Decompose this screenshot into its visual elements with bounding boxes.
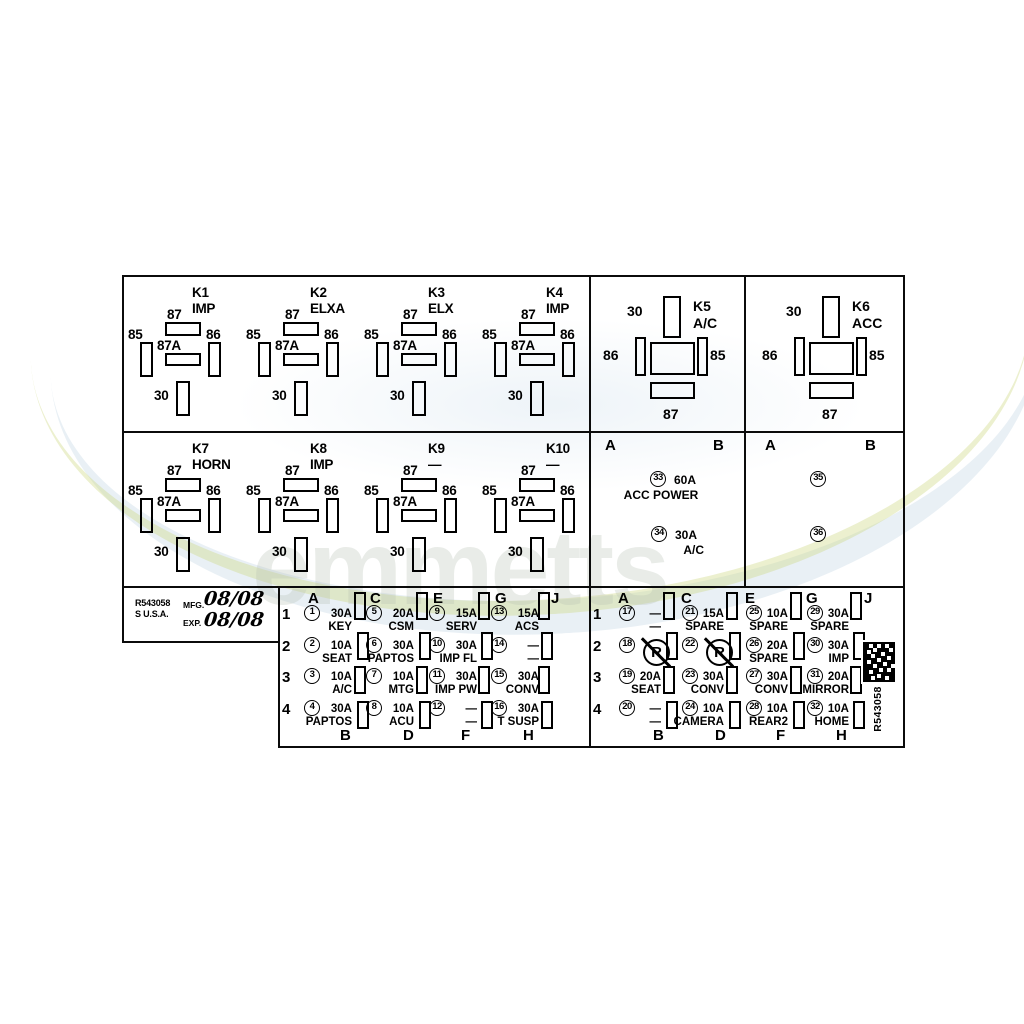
fuse-amp: 10A — [767, 703, 788, 715]
relay-cell-k7: K7 HORN 87 85 86 87A 30 — [124, 435, 242, 585]
pin-label-85: 85 — [364, 483, 378, 498]
fuse-number: 18 — [619, 637, 635, 653]
fuse-amp: 10A — [828, 703, 849, 715]
pin-slot-30 — [412, 381, 426, 416]
fuse-cell-7: 710AMTG — [366, 668, 414, 698]
fuse-slot — [538, 592, 550, 620]
fuse-name: PAPTOS — [306, 716, 352, 728]
fuse-number: 8 — [366, 700, 382, 716]
pin-slot-86 — [794, 337, 805, 376]
relay-id: K10 — [546, 441, 570, 456]
fuse-number: 9 — [429, 605, 445, 621]
fuse-number: 36 — [810, 526, 826, 542]
fuse-name: PAPTOS — [368, 653, 414, 665]
pin-slot-87a — [165, 353, 201, 366]
fuse-cell-9: 915ASERV — [429, 605, 477, 635]
fuse-cell-10: 1030AIMP FL — [429, 637, 477, 667]
fuse-cell-8: 810AACU — [366, 700, 414, 730]
relay-cell-k2: K2 ELXA 87 85 86 87A 30 — [242, 279, 360, 429]
fuse-amp: 30A — [828, 608, 849, 620]
fuse-number: 23 — [682, 668, 698, 684]
fuse-name: MIRROR — [802, 684, 849, 696]
fuse-name: SPARE — [749, 621, 788, 633]
fuse-number: 32 — [807, 700, 823, 716]
pin-label-87: 87 — [285, 463, 299, 478]
fuse-amp: 30A — [518, 703, 539, 715]
fuse-slot — [729, 701, 741, 729]
fuse-number: 14 — [491, 637, 507, 653]
column-letter-a: A — [605, 437, 616, 454]
pin-label-85: 85 — [364, 327, 378, 342]
pin-label-87: 87 — [285, 307, 299, 322]
relay-cell-k4: K4 IMP 87 85 86 87A 30 — [478, 279, 596, 429]
pin-slot-87 — [519, 322, 555, 336]
fuse-slot — [541, 701, 553, 729]
relay-cell-k3: K3 ELX 87 85 86 87A 30 — [360, 279, 478, 429]
pin-label-87a: 87A — [511, 494, 535, 509]
pin-slot-85 — [856, 337, 867, 376]
fuse-cell-2: 210ASEAT — [304, 637, 352, 667]
exp-label: EXP. — [183, 618, 201, 628]
grid-row-number: 1 — [282, 606, 290, 623]
fuse-slot — [354, 592, 366, 620]
fuse-number: 15 — [491, 668, 507, 684]
exp-date-stamp: 08/08 — [203, 610, 265, 631]
fuse-name: SEAT — [631, 684, 661, 696]
relay-id: K3 — [428, 285, 445, 300]
relay-id: K5 — [693, 298, 711, 314]
pin-label-30: 30 — [272, 388, 286, 403]
pin-slot-30 — [822, 296, 840, 338]
no-relay-letter: R — [651, 644, 662, 661]
pin-label-85: 85 — [482, 327, 496, 342]
fuse-number: 1 — [304, 605, 320, 621]
fuse-cell-25: 2510ASPARE — [746, 605, 788, 635]
fuse-cell-30: 3030AIMP — [807, 637, 849, 667]
fuse-cell-4: 430APAPTOS — [304, 700, 352, 730]
fuse-cell-28: 2810AREAR2 — [746, 700, 788, 730]
relay-cell-k1: K1 IMP 87 85 86 87A 30 — [124, 279, 242, 429]
fuse-number: 10 — [429, 637, 445, 653]
pin-slot-87 — [401, 322, 437, 336]
pin-slot-30 — [294, 381, 308, 416]
pin-slot-87 — [283, 322, 319, 336]
relay-box-k5: 30 K5 A/C 86 85 87 — [589, 275, 746, 433]
relay-name: ACC — [852, 315, 882, 331]
pin-slot-87a — [165, 509, 201, 522]
fuse-name: CONV — [506, 684, 539, 696]
fuse-slot — [663, 666, 675, 694]
fuse-slot — [541, 632, 553, 660]
fuse-number: 5 — [366, 605, 382, 621]
pin-slot-87a — [283, 509, 319, 522]
fuse-number: 6 — [366, 637, 382, 653]
fuse-amp: 20A — [767, 640, 788, 652]
fuse-slot — [790, 666, 802, 694]
pin-label-87a: 87A — [157, 338, 181, 353]
fuse-amp: 30A — [393, 640, 414, 652]
fuse-slot — [416, 592, 428, 620]
relay-body-slot — [650, 342, 695, 375]
no-relay-symbol: R — [643, 639, 670, 666]
column-letter-b: B — [713, 437, 724, 454]
pin-slot-87 — [165, 478, 201, 492]
relay-body-slot — [809, 342, 854, 375]
pin-label-87a: 87A — [275, 338, 299, 353]
fuse-slot — [416, 666, 428, 694]
fuse-name: SERV — [446, 621, 477, 633]
pin-slot-87 — [809, 382, 854, 399]
pin-label-85: 85 — [710, 347, 726, 363]
fuse-name: — — [466, 716, 478, 728]
pin-label-86: 86 — [560, 483, 574, 498]
fuse-slot — [793, 701, 805, 729]
pin-slot-85 — [376, 342, 389, 377]
fuse-number: 2 — [304, 637, 320, 653]
fuse-slot — [793, 632, 805, 660]
pin-slot-86 — [208, 342, 221, 377]
fuse-name: IMP PW — [435, 684, 477, 696]
pin-slot-87 — [519, 478, 555, 492]
pin-label-30: 30 — [786, 303, 802, 319]
fuse-cell-11: 1130AIMP PW — [429, 668, 477, 698]
pin-label-87: 87 — [521, 463, 535, 478]
pin-slot-87 — [283, 478, 319, 492]
fuse-number: 24 — [682, 700, 698, 716]
pin-label-85: 85 — [246, 483, 260, 498]
relay-name: HORN — [192, 457, 231, 472]
grid-row-number: 3 — [282, 669, 290, 686]
fuse-name: MTG — [388, 684, 414, 696]
pin-label-86: 86 — [324, 483, 338, 498]
fuse-cell-20: 20—— — [619, 700, 661, 730]
fuse-name: SPARE — [685, 621, 724, 633]
relay-id: K4 — [546, 285, 563, 300]
pin-label-30: 30 — [154, 544, 168, 559]
pin-label-87a: 87A — [275, 494, 299, 509]
fuse-name: ACC POWER — [591, 488, 731, 502]
fuse-number: 31 — [807, 668, 823, 684]
pin-slot-87a — [519, 353, 555, 366]
pin-slot-86 — [444, 342, 457, 377]
fuse-name: IMP FL — [440, 653, 477, 665]
fuse-name: CONV — [691, 684, 724, 696]
pin-slot-30 — [530, 537, 544, 572]
fuse-amp: 30A — [456, 640, 477, 652]
fuse-slot — [726, 666, 738, 694]
fuse-name: — — [650, 716, 662, 728]
fuse-amp: 30A — [767, 671, 788, 683]
pin-label-87: 87 — [403, 307, 417, 322]
relay-box-k7-k10: K7 HORN 87 85 86 87A 30 K8 IMP 87 85 86 … — [122, 431, 591, 588]
mfg-date-stamp: 08/08 — [203, 589, 265, 610]
fuse-number: 3 — [304, 668, 320, 684]
fuse-name: ACU — [389, 716, 414, 728]
relay-name: IMP — [310, 457, 333, 472]
fuse-amp: 20A — [828, 671, 849, 683]
fuse-amp: 20A — [640, 671, 661, 683]
fuse-amp: 10A — [393, 703, 414, 715]
pin-slot-87 — [401, 478, 437, 492]
column-letter-a: A — [765, 437, 776, 454]
fuse-name: CONV — [755, 684, 788, 696]
fuse-number: 27 — [746, 668, 762, 684]
pin-slot-85 — [697, 337, 708, 376]
relay-cell-k9: K9 — 87 85 86 87A 30 — [360, 435, 478, 585]
fuse-slot — [538, 666, 550, 694]
relay-name: IMP — [192, 301, 215, 316]
relay-name: — — [546, 457, 559, 472]
relay-id: K6 — [852, 298, 870, 314]
pin-slot-85 — [258, 342, 271, 377]
fuse-name: A/C — [640, 543, 704, 557]
pin-slot-30 — [530, 381, 544, 416]
pin-slot-85 — [494, 342, 507, 377]
pin-label-86: 86 — [442, 327, 456, 342]
pin-slot-30 — [663, 296, 681, 338]
fuse-amp: 20A — [393, 608, 414, 620]
pin-label-85: 85 — [246, 327, 260, 342]
fuse-number: 12 — [429, 700, 445, 716]
pin-label-87a: 87A — [393, 494, 417, 509]
fuse-amp: 30A — [518, 671, 539, 683]
pin-label-87: 87 — [521, 307, 535, 322]
pin-label-85: 85 — [869, 347, 885, 363]
pin-label-86: 86 — [324, 327, 338, 342]
grid-row-number: 1 — [593, 606, 601, 623]
fuse-name: IMP — [829, 653, 849, 665]
no-relay-symbol: R — [706, 639, 733, 666]
relay-name: ELX — [428, 301, 453, 316]
fuse-cell-24: 2410ACAMERA — [682, 700, 724, 730]
fuse-grid-right: 1 2 3 4 A C E G J B D F H 17—— 2115ASPAR… — [589, 586, 905, 748]
fuse-number: 22 — [682, 637, 698, 653]
info-label-plate: R543058 S U.S.A. MFG. 08/08 EXP. 08/08 — [122, 586, 280, 643]
pin-label-30: 30 — [627, 303, 643, 319]
grid-row-number: 4 — [593, 701, 601, 718]
pin-slot-87a — [283, 353, 319, 366]
fuse-slot — [478, 592, 490, 620]
relay-cell-k8: K8 IMP 87 85 86 87A 30 — [242, 435, 360, 585]
pin-label-87: 87 — [403, 463, 417, 478]
fuse-slot — [853, 701, 865, 729]
pin-slot-86 — [208, 498, 221, 533]
fuse-amp: 30A — [675, 528, 697, 542]
part-number-vertical: R543058 — [872, 674, 884, 744]
fuse-slot — [478, 666, 490, 694]
pin-label-87: 87 — [822, 406, 838, 422]
fuse-name: T SUSP — [497, 716, 539, 728]
pin-label-86: 86 — [603, 347, 619, 363]
pin-slot-87 — [165, 322, 201, 336]
fuse-name: SEAT — [322, 653, 352, 665]
fuse-cell-3: 310AA/C — [304, 668, 352, 698]
fuse-name: — — [650, 621, 662, 633]
relay-id: K9 — [428, 441, 445, 456]
fuse-cell-12: 12—— — [429, 700, 477, 730]
pin-label-30: 30 — [390, 388, 404, 403]
fuse-name: HOME — [815, 716, 850, 728]
fuse-name: ACS — [515, 621, 539, 633]
fuse-number: 25 — [746, 605, 762, 621]
pin-label-85: 85 — [482, 483, 496, 498]
fuse-amp: 15A — [456, 608, 477, 620]
fuse-cell-29: 2930ASPARE — [807, 605, 849, 635]
fuse-slot — [790, 592, 802, 620]
no-relay-letter: R — [714, 644, 725, 661]
pin-slot-85 — [494, 498, 507, 533]
fuse-cell-1: 130AKEY — [304, 605, 352, 635]
fuse-number: 19 — [619, 668, 635, 684]
part-number: R543058 — [135, 598, 170, 608]
fuse-number: 21 — [682, 605, 698, 621]
fuse-cell-14: 14—— — [491, 637, 539, 667]
fuse-number: 33 — [650, 471, 666, 487]
fuse-name: REAR2 — [749, 716, 788, 728]
maxi-fuse-box-left: A B 33 60A ACC POWER 34 30A A/C — [589, 431, 746, 588]
pin-label-87a: 87A — [511, 338, 535, 353]
relay-id: K1 — [192, 285, 209, 300]
fuse-cell-15: 1530ACONV — [491, 668, 539, 698]
fuse-amp: 10A — [393, 671, 414, 683]
relay-name: IMP — [546, 301, 569, 316]
fuse-slot — [354, 666, 366, 694]
fuse-amp: 10A — [331, 671, 352, 683]
pin-label-85: 85 — [128, 483, 142, 498]
fuse-number: 20 — [619, 700, 635, 716]
fuse-slot — [726, 592, 738, 620]
grid-row-number: 4 — [282, 701, 290, 718]
fuse-cell-16: 1630AT SUSP — [491, 700, 539, 730]
pin-slot-86 — [635, 337, 646, 376]
fuse-slot-column — [790, 588, 806, 746]
relay-id: K2 — [310, 285, 327, 300]
pin-slot-85 — [376, 498, 389, 533]
pin-slot-86 — [326, 498, 339, 533]
fuse-amp: 30A — [331, 703, 352, 715]
pin-label-30: 30 — [390, 544, 404, 559]
pin-slot-85 — [140, 498, 153, 533]
pin-label-87: 87 — [167, 307, 181, 322]
fuse-number: 17 — [619, 605, 635, 621]
fuse-slot — [663, 592, 675, 620]
relay-cell-k10: K10 — 87 85 86 87A 30 — [478, 435, 596, 585]
fuse-name: SPARE — [749, 653, 788, 665]
relay-id: K7 — [192, 441, 209, 456]
fuse-cell-31: 3120AMIRROR — [807, 668, 849, 698]
pin-label-87: 87 — [663, 406, 679, 422]
fuse-amp: — — [650, 608, 662, 620]
pin-slot-86 — [562, 498, 575, 533]
pin-slot-87a — [519, 509, 555, 522]
fuse-amp: — — [650, 703, 662, 715]
fuse-amp: 10A — [767, 608, 788, 620]
pin-slot-86 — [562, 342, 575, 377]
pin-slot-85 — [140, 342, 153, 377]
fuse-cell-5: 520ACSM — [366, 605, 414, 635]
pin-slot-30 — [176, 381, 190, 416]
pin-slot-85 — [258, 498, 271, 533]
fuse-amp: — — [466, 703, 478, 715]
fuse-slot-column — [538, 588, 554, 746]
fuse-cell-32: 3210AHOME — [807, 700, 849, 730]
pin-label-86: 86 — [442, 483, 456, 498]
origin-text: S U.S.A. — [135, 609, 168, 619]
relay-box-k1-k4: K1 IMP 87 85 86 87A 30 K2 ELXA 87 85 86 … — [122, 275, 591, 433]
fuse-cell-6: 630APAPTOS — [366, 637, 414, 667]
fuse-number: 4 — [304, 700, 320, 716]
fuse-amp: 10A — [331, 640, 352, 652]
fuse-amp: 30A — [703, 671, 724, 683]
pin-slot-30 — [176, 537, 190, 572]
fuse-amp: 60A — [674, 473, 696, 487]
pin-label-87a: 87A — [157, 494, 181, 509]
grid-row-number: 2 — [282, 638, 290, 655]
fuse-cell-17: 17—— — [619, 605, 661, 635]
fuse-amp: 15A — [703, 608, 724, 620]
pin-slot-87 — [650, 382, 695, 399]
grid-row-number: 3 — [593, 669, 601, 686]
fuse-cell-23: 2330ACONV — [682, 668, 724, 698]
relay-name: A/C — [693, 315, 717, 331]
pin-slot-30 — [412, 537, 426, 572]
relay-name: — — [428, 457, 441, 472]
pin-label-86: 86 — [560, 327, 574, 342]
pin-label-86: 86 — [762, 347, 778, 363]
fuse-cell-13: 1315AACS — [491, 605, 539, 635]
pin-slot-86 — [444, 498, 457, 533]
fuse-relay-panel-diagram: emmetts K1 IMP 87 85 86 87A 30 K2 ELXA 8… — [0, 0, 1024, 1024]
fuse-number: 34 — [651, 526, 667, 542]
fuse-amp: 15A — [518, 608, 539, 620]
fuse-amp: — — [528, 640, 540, 652]
grid-row-number: 2 — [593, 638, 601, 655]
fuse-amp: 30A — [456, 671, 477, 683]
fuse-slot-column — [726, 588, 742, 746]
pin-label-30: 30 — [154, 388, 168, 403]
fuse-name: CAMERA — [674, 716, 724, 728]
fuse-cell-19: 1920ASEAT — [619, 668, 661, 698]
relay-box-k6: 30 K6 ACC 86 85 87 — [744, 275, 905, 433]
fuse-amp: 10A — [703, 703, 724, 715]
fuse-amp: 30A — [828, 640, 849, 652]
pin-label-85: 85 — [128, 327, 142, 342]
column-letter-b: B — [865, 437, 876, 454]
fuse-number: 35 — [810, 471, 826, 487]
fuse-number: 30 — [807, 637, 823, 653]
fuse-slot — [850, 592, 862, 620]
fuse-amp: 30A — [331, 608, 352, 620]
fuse-number: 29 — [807, 605, 823, 621]
pin-label-86: 86 — [206, 327, 220, 342]
fuse-number: 16 — [491, 700, 507, 716]
pin-slot-30 — [294, 537, 308, 572]
fuse-cell-18: 18R — [619, 637, 661, 667]
pin-label-30: 30 — [272, 544, 286, 559]
pin-slot-86 — [326, 342, 339, 377]
mfg-label: MFG. — [183, 600, 204, 610]
pin-label-30: 30 — [508, 544, 522, 559]
fuse-name: SPARE — [810, 621, 849, 633]
fuse-grid-left: 1 2 3 4 A C E G J B D F H 130AKEY 520ACS… — [278, 586, 591, 748]
fuse-cell-26: 2620ASPARE — [746, 637, 788, 667]
pin-slot-87a — [401, 353, 437, 366]
relay-cell-k6: 30 K6 ACC 86 85 87 — [752, 277, 902, 428]
fuse-number: 13 — [491, 605, 507, 621]
fuse-name: KEY — [328, 621, 352, 633]
pin-slot-87a — [401, 509, 437, 522]
relay-cell-k5: 30 K5 A/C 86 85 87 — [593, 277, 743, 428]
